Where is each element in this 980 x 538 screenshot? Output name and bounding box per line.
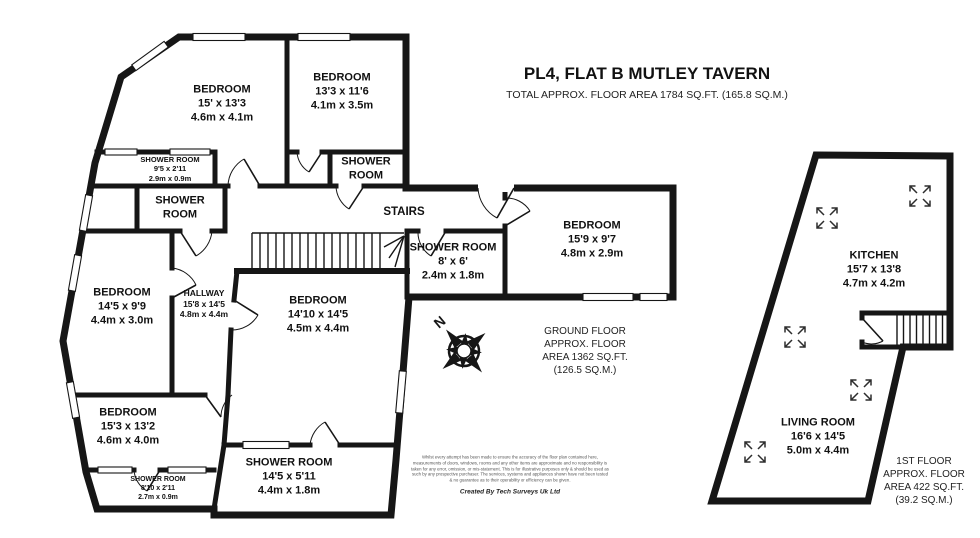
room-label-bedroom-4: BEDROOM14'5 x 9'94.4m x 3.0m — [91, 286, 153, 327]
room-label-stairs: STAIRS — [383, 205, 424, 219]
room-label-kitchen: KITCHEN15'7 x 13'84.7m x 4.2m — [843, 249, 905, 290]
page-title: PL4, FLAT B MUTLEY TAVERN — [524, 64, 770, 84]
door-arcs — [134, 152, 883, 491]
first-floor-stairs — [897, 313, 943, 347]
floor-plan-page: N PL4, FLAT B MUTLEY TAVERN TOTAL APPROX… — [0, 0, 980, 538]
room-label-bedroom-3: BEDROOM15'9 x 9'74.8m x 2.9m — [561, 219, 623, 260]
room-label-bedroom-6: BEDROOM15'3 x 13'24.6m x 4.0m — [97, 406, 159, 447]
room-label-shower-room-2: SHOWERROOM — [155, 194, 205, 222]
credit-text: Created By Tech Surveys Uk Ltd — [460, 489, 560, 496]
room-label-shower-room-6: SHOWER ROOM14'5 x 5'114.4m x 1.8m — [246, 456, 333, 497]
room-label-bedroom-1: BEDROOM15' x 13'34.6m x 4.1m — [191, 83, 253, 124]
entry-door-opening — [478, 184, 514, 192]
compass-rose-icon: N — [413, 298, 503, 391]
room-label-shower-room-4: SHOWER ROOM8' x 6'2.4m x 1.8m — [410, 241, 497, 282]
room-label-shower-room-5: SHOWER ROOM8'10 x 2'112.7m x 0.9m — [130, 476, 185, 502]
expand-arrow-icon — [851, 380, 871, 400]
room-label-shower-room-1: SHOWER ROOM9'5 x 2'112.9m x 0.9m — [140, 155, 199, 183]
room-label-bedroom-2: BEDROOM13'3 x 11'64.1m x 3.5m — [311, 71, 373, 112]
expand-arrow-icon — [910, 186, 930, 206]
first-floor-note: 1ST FLOORAPPROX. FLOORAREA 422 SQ.FT.(39… — [883, 455, 965, 507]
page-subtitle: TOTAL APPROX. FLOOR AREA 1784 SQ.FT. (16… — [506, 89, 788, 101]
door-leaves — [147, 152, 883, 491]
disclaimer-text: Whilst every attempt has been made to en… — [410, 455, 610, 484]
room-label-living-room: LIVING ROOM16'6 x 14'55.0m x 4.4m — [781, 416, 855, 457]
ground-floor-note: GROUND FLOORAPPROX. FLOORAREA 1362 SQ.FT… — [542, 325, 628, 377]
compass-north-label: N — [431, 313, 449, 332]
room-label-hallway: HALLWAY15'8 x 14'54.8m x 4.4m — [180, 288, 228, 320]
room-label-bedroom-5: BEDROOM14'10 x 14'54.5m x 4.4m — [287, 294, 349, 335]
room-label-shower-room-3: SHOWERROOM — [341, 155, 391, 183]
expand-arrow-icon — [785, 327, 805, 347]
expand-arrow-icon — [745, 442, 765, 462]
expand-arrow-icon — [817, 208, 837, 228]
ground-floor-stairs — [252, 233, 404, 268]
